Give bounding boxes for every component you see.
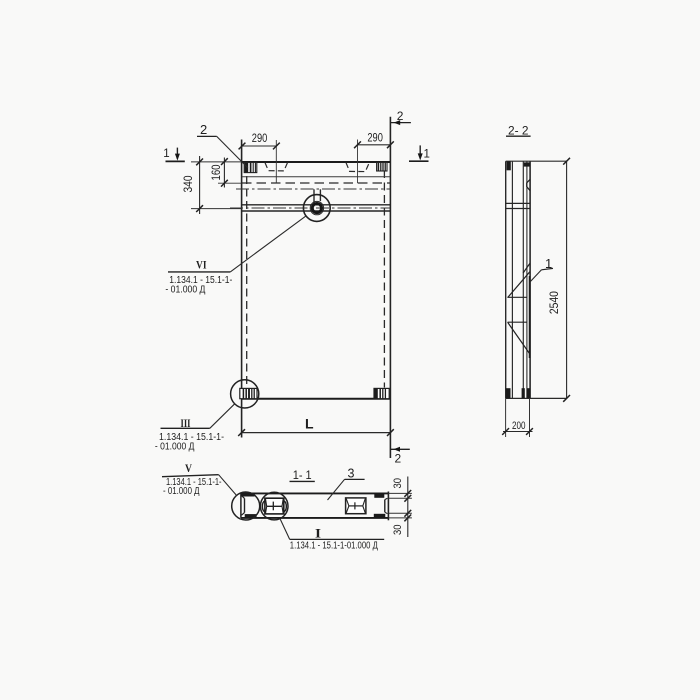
svg-text:- 01.000 Д: - 01.000 Д <box>155 442 195 453</box>
svg-text:V: V <box>185 461 192 475</box>
svg-text:1.134.1 - 15.1-1-01.000 Д: 1.134.1 - 15.1-1-01.000 Д <box>290 541 378 552</box>
svg-text:30: 30 <box>392 525 404 536</box>
svg-text:290: 290 <box>252 133 267 145</box>
svg-text:30: 30 <box>392 478 404 489</box>
svg-text:340: 340 <box>183 176 195 193</box>
svg-text:2: 2 <box>395 452 402 466</box>
svg-text:1: 1 <box>163 148 169 160</box>
svg-text:3: 3 <box>348 467 355 481</box>
svg-text:VI: VI <box>196 260 207 272</box>
svg-text:2: 2 <box>397 109 404 123</box>
svg-text:L: L <box>305 416 314 432</box>
svg-text:- 01.000 Д: - 01.000 Д <box>163 486 200 497</box>
svg-text:1: 1 <box>424 149 430 161</box>
svg-text:2- 2: 2- 2 <box>508 123 529 137</box>
svg-text:1- 1: 1- 1 <box>293 468 312 482</box>
svg-text:200: 200 <box>512 420 526 432</box>
svg-text:I: I <box>315 527 321 541</box>
svg-text:160: 160 <box>211 165 223 181</box>
svg-text:- 01.000 Д: - 01.000 Д <box>165 284 205 295</box>
svg-text:2540: 2540 <box>549 291 561 314</box>
svg-text:290: 290 <box>367 133 383 145</box>
svg-text:2: 2 <box>200 122 207 137</box>
